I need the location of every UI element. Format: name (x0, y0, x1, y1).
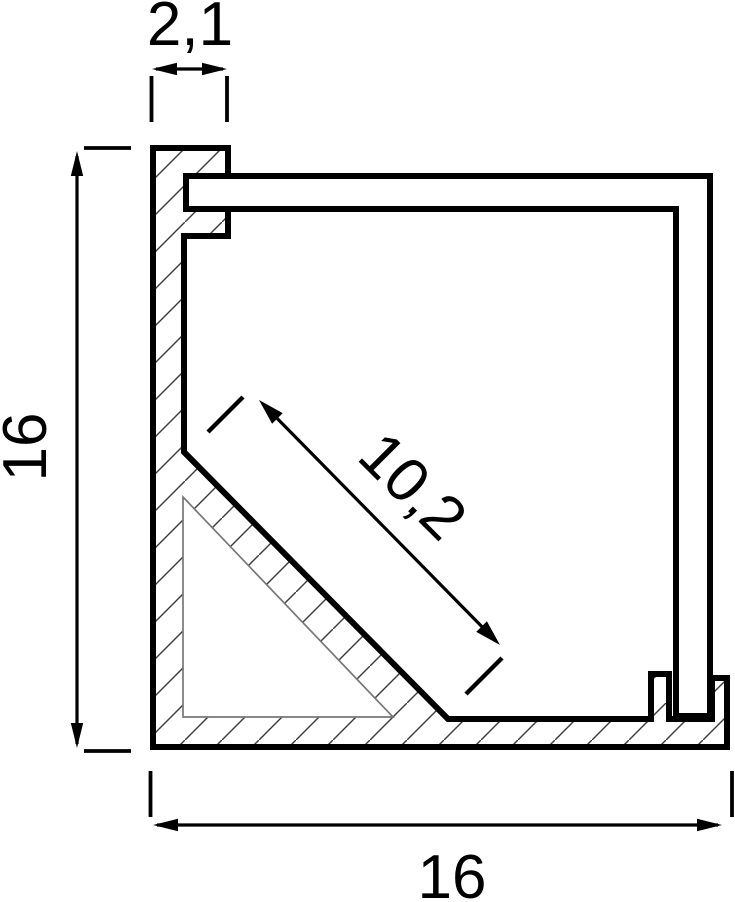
left-dim-arrow-top (71, 151, 83, 176)
left-dim-arrow-bottom (71, 723, 83, 748)
bottom-dim-arrow-left (153, 819, 178, 831)
diagonal-dim-extension-lower (466, 658, 502, 694)
dimension-left: 16 (0, 148, 131, 751)
technical-drawing-page: 2,1 16 16 10,2 (0, 0, 735, 902)
bottom-dim-label: 16 (418, 843, 487, 902)
top-dim-label: 2,1 (147, 0, 233, 59)
top-dim-arrow-left (152, 63, 177, 75)
profile-cross-section-drawing: 2,1 16 16 10,2 (0, 0, 735, 902)
dimension-bottom: 16 (151, 771, 733, 902)
bottom-dim-arrow-right (697, 819, 722, 831)
diagonal-dim-extension-upper (208, 397, 243, 432)
dimension-top: 2,1 (147, 0, 233, 122)
diagonal-dim-label: 10,2 (345, 419, 479, 553)
triangle-hollow-chamber (183, 497, 393, 717)
left-dim-label: 16 (0, 413, 60, 482)
top-dim-arrow-right (202, 63, 227, 75)
